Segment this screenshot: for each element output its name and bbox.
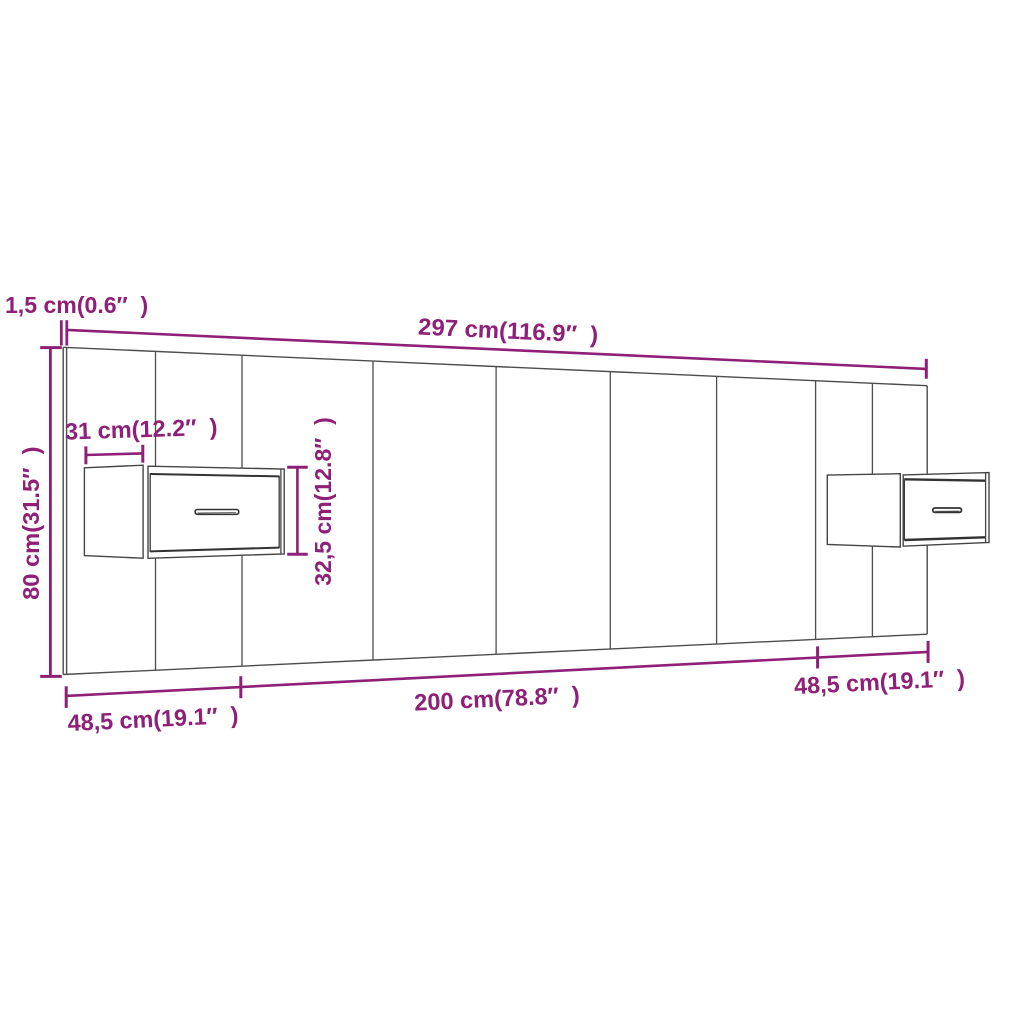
svg-text:80 cm(31.5″ ): 80 cm(31.5″ ) — [18, 446, 44, 600]
svg-text:1,5 cm(0.6″ ): 1,5 cm(0.6″ ) — [5, 292, 148, 318]
svg-text:31 cm(12.2″ ): 31 cm(12.2″ ) — [65, 414, 218, 445]
svg-text:32,5 cm(12.8″ ): 32,5 cm(12.8″ ) — [310, 417, 336, 586]
